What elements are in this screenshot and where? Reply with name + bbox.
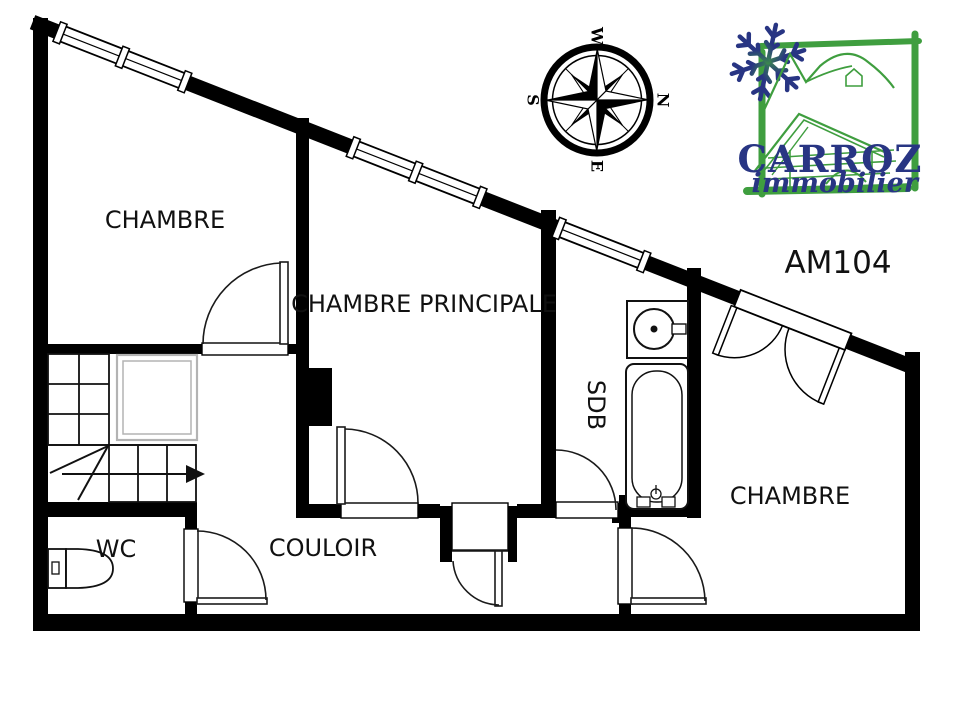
agency-logo: CARROZ immobilier xyxy=(724,17,922,199)
wall-cp-right xyxy=(541,210,556,518)
compass-south: S xyxy=(524,94,543,106)
label-chambre-right: CHAMBRE xyxy=(730,482,850,510)
chimney-block xyxy=(309,368,332,426)
compass-north: N xyxy=(654,93,673,108)
door-chambre1 xyxy=(203,262,288,344)
wall-couloir-north-b xyxy=(418,504,440,518)
label-chambre-principale: CHAMBRE PRINCIPALE xyxy=(291,290,557,318)
staircase xyxy=(48,354,205,502)
wall-couloir-north-c xyxy=(517,504,541,518)
wall-stairs-south xyxy=(33,502,197,517)
sink-icon xyxy=(627,301,688,358)
floorplan-page: CHAMBRE CHAMBRE PRINCIPALE SDB CHAMBRE W… xyxy=(0,0,960,720)
wall-chambre1-south-b xyxy=(288,344,309,354)
wall-left xyxy=(33,18,48,631)
label-sdb: SDB xyxy=(582,380,610,430)
label-wc: WC xyxy=(96,535,137,563)
door-chambre-principale xyxy=(337,427,418,504)
opening-sdb xyxy=(556,502,618,518)
door-entry xyxy=(452,550,508,606)
compass-rose-icon: W N E S xyxy=(524,26,673,172)
door-chambre-right xyxy=(631,528,706,604)
french-door xyxy=(710,289,851,404)
wall-chambre1-south-a xyxy=(33,344,202,354)
opening-wc xyxy=(184,529,198,602)
stair-void xyxy=(117,355,197,440)
wall-bottom xyxy=(33,614,920,631)
opening-chambre-right xyxy=(618,528,632,604)
french-door-frame xyxy=(734,290,851,350)
compass-east: E xyxy=(588,160,607,172)
snowflake-icon xyxy=(724,17,812,107)
entry-stub-left xyxy=(440,506,452,562)
wall-wc-east-top xyxy=(185,517,197,530)
label-couloir: COULOIR xyxy=(269,534,377,562)
door-openings xyxy=(184,343,632,604)
french-door-leaf-right xyxy=(818,348,845,404)
logo-tagline: immobilier xyxy=(752,168,920,199)
wall-cp-left xyxy=(296,118,309,518)
compass-west: W xyxy=(588,26,607,46)
opening-chambre1 xyxy=(202,343,288,355)
apartment-reference: AM104 xyxy=(784,245,891,281)
door-sdb xyxy=(556,450,616,510)
floorplan-drawing: CHAMBRE CHAMBRE PRINCIPALE SDB CHAMBRE W… xyxy=(0,0,960,720)
stair-direction-arrow xyxy=(50,446,205,500)
wall-sdb-right xyxy=(687,268,701,518)
window-3 xyxy=(552,217,651,272)
bathtub-icon xyxy=(626,364,688,509)
entry-recess xyxy=(452,503,508,551)
window-2 xyxy=(346,137,487,209)
wall-couloir-north-a xyxy=(296,504,341,518)
opening-cp xyxy=(341,503,418,518)
window-1 xyxy=(53,22,192,93)
french-door-leaf-left xyxy=(713,306,737,356)
wall-right xyxy=(905,352,920,631)
wall-wc-east-bottom xyxy=(185,602,197,616)
entry-stub-right xyxy=(508,506,517,562)
door-wc xyxy=(197,531,267,604)
label-chambre-top: CHAMBRE xyxy=(105,206,225,234)
wall-chambre-right-west-bottom xyxy=(619,604,631,616)
